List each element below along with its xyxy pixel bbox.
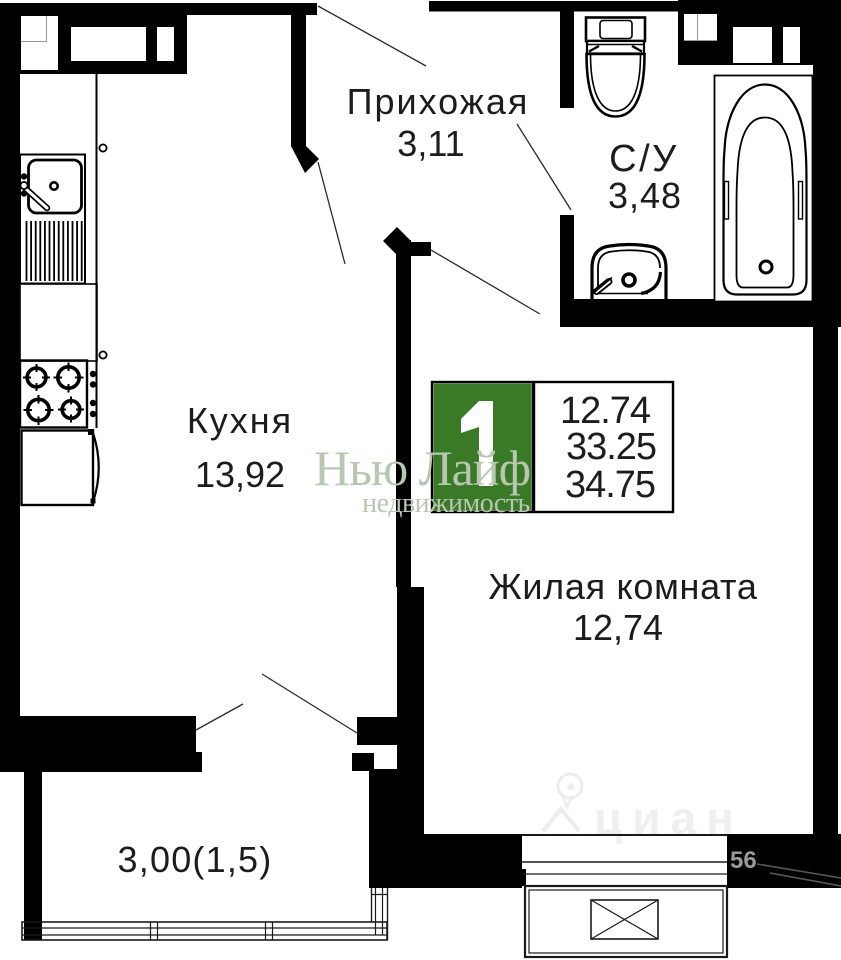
svg-text:3,11: 3,11 (397, 123, 464, 164)
svg-text:33.25: 33.25 (566, 426, 656, 468)
svg-text:недвижимость: недвижимость (362, 488, 530, 519)
svg-text:Прихожая: Прихожая (347, 81, 530, 122)
svg-text:12,74: 12,74 (573, 607, 663, 648)
svg-text:56: 56 (730, 847, 757, 874)
svg-text:3,48: 3,48 (608, 175, 682, 216)
svg-text:13,92: 13,92 (195, 454, 285, 495)
svg-text:Жилая комната: Жилая комната (488, 566, 757, 607)
svg-text:циан: циан (594, 792, 744, 844)
svg-text:Кухня: Кухня (187, 400, 293, 441)
svg-text:С/У: С/У (609, 138, 679, 180)
svg-text:3,00(1,5): 3,00(1,5) (118, 839, 273, 880)
svg-text:34.75: 34.75 (565, 464, 655, 506)
